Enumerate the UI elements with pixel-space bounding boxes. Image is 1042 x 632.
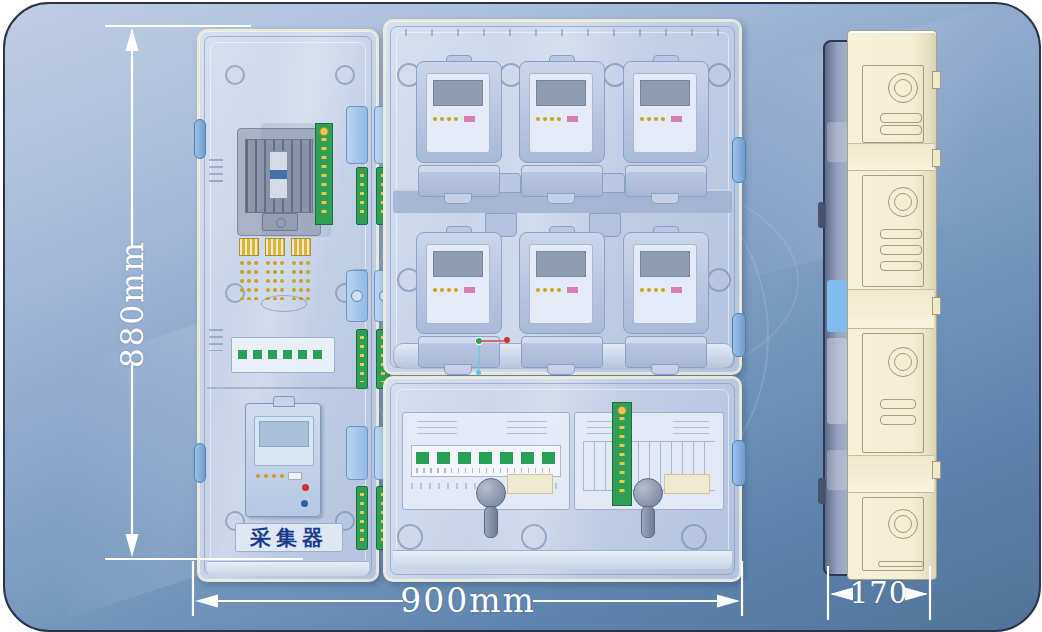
collector-top-tab [273, 396, 295, 407]
axis-marker-cyan [476, 370, 481, 375]
hinge-pcb-strip [356, 486, 368, 550]
side-edge-tab [932, 71, 941, 89]
side-view [821, 30, 937, 582]
vent-lines [417, 421, 457, 435]
meter-cover-tab [444, 364, 472, 375]
label-tag [664, 474, 710, 494]
vent-slot [880, 261, 922, 271]
pcb-mount-dot [619, 407, 626, 414]
led-dot [264, 474, 268, 478]
screw-boss [225, 65, 245, 85]
meter-cover-tab [547, 193, 575, 204]
meter-face [426, 244, 490, 324]
wiring-terminal-strip [231, 337, 335, 373]
knockout-ring-inner [894, 79, 912, 97]
meter-led-row [536, 116, 578, 122]
breaker-switch-row [411, 445, 561, 477]
side-latch-block [827, 122, 847, 162]
door-hinge-left [194, 443, 206, 483]
meter-lcd [640, 251, 690, 277]
meter-label-pink [464, 287, 475, 293]
meter-led-row [640, 116, 682, 122]
pcb-solder-dots [322, 138, 327, 216]
collector-led-row [256, 472, 302, 480]
energy-meter [623, 55, 707, 200]
fuse-terminal-block [239, 238, 259, 300]
side-hinge-highlight [827, 280, 847, 332]
meter-label-pink [671, 287, 682, 293]
meter-lcd [433, 80, 483, 106]
meter-label-pink [464, 116, 475, 122]
energy-meter [416, 226, 500, 371]
meter-face [529, 73, 593, 153]
vertical-terminal-pcb [612, 402, 632, 506]
knockout-ring-inner [894, 193, 912, 211]
meter-cover-tab [651, 193, 679, 204]
pcb-mount-dot [321, 128, 328, 135]
meter-face [633, 244, 697, 324]
energy-meter [519, 55, 603, 200]
meter-led-row [433, 116, 475, 122]
knockout-ring-inner [894, 353, 912, 371]
collector-red-button [302, 484, 309, 491]
pcb-solder-dots [620, 417, 625, 497]
vent-slot [880, 229, 922, 239]
meter-led-row [536, 287, 578, 293]
latch-knob [351, 290, 363, 302]
breaker-switch-toggles [416, 452, 556, 464]
meter-led-row [433, 287, 475, 293]
led-dot [256, 474, 260, 478]
collector-lcd [259, 421, 309, 447]
section-band [848, 143, 934, 171]
breaker-comb [416, 468, 556, 473]
energy-meter [519, 226, 603, 371]
fuse-terminal-pins [239, 260, 259, 300]
depth-dimension-label: 170 [850, 576, 908, 610]
vent-slot [880, 399, 916, 409]
meter-led-row [640, 287, 682, 293]
fuse-terminal-head [291, 238, 311, 256]
meter-face [529, 244, 593, 324]
side-view-body [847, 30, 937, 580]
section-band [848, 455, 934, 493]
top-clip-comb [405, 29, 720, 36]
knockout-ring-inner [894, 515, 912, 533]
meter-face [426, 73, 490, 153]
led-dot [280, 474, 284, 478]
meter-cover-tab [444, 193, 472, 204]
lock-lever [641, 506, 655, 538]
side-edge-tab [932, 461, 941, 479]
screw-boss [521, 524, 547, 550]
collector-blue-button [301, 500, 308, 507]
energy-meter [416, 55, 500, 200]
lock-knob [476, 478, 506, 508]
lock-lever [484, 506, 498, 538]
fuse-terminal-head [239, 238, 259, 256]
vent-slot [880, 125, 922, 135]
vent-slot [880, 415, 916, 425]
side-edge-tab [932, 297, 941, 315]
meter-face [633, 73, 697, 153]
meter-section-panel [383, 19, 742, 375]
lower-breaker-panel [383, 376, 742, 582]
meter-lcd [536, 251, 586, 277]
lock-knob [633, 478, 663, 508]
axis-marker-line [482, 340, 504, 342]
pcb-solder-dots [360, 493, 364, 543]
collector-screen-bezel [254, 416, 314, 466]
side-hinge-nub [818, 478, 826, 504]
meter-box-dimension-diagram: 采集器 [0, 0, 1042, 632]
collector-port [288, 472, 302, 480]
side-hinge-nub [818, 202, 826, 228]
door-latch [346, 270, 368, 322]
pcb-solder-dots [360, 336, 364, 382]
panel-hinge-right [732, 440, 746, 486]
hinge-pcb-strip [356, 167, 368, 225]
screw-boss [707, 268, 731, 292]
collector-plaque: 采集器 [235, 523, 343, 552]
door-seam [207, 387, 369, 389]
side-latch-block [827, 450, 847, 490]
door-bottom-skirt [207, 561, 369, 576]
panel-bottom-skirt [393, 550, 732, 569]
pcb-solder-dots [360, 174, 364, 218]
vent-lines [673, 421, 709, 435]
fuse-terminal-block [291, 238, 311, 300]
screw-boss [335, 65, 355, 85]
side-latch-block [827, 338, 847, 424]
vent-slot [880, 113, 922, 123]
data-collector-unit [245, 403, 321, 517]
hinge-pcb-strip [356, 329, 368, 389]
side-edge-tab [932, 149, 941, 167]
panel-hinge-right [732, 137, 746, 183]
height-dimension-label: 880mm [114, 240, 150, 368]
axis-marker-red [504, 337, 510, 343]
fuse-terminal-pins [265, 260, 285, 300]
label-tag [507, 474, 553, 494]
meter-cover-tab [547, 364, 575, 375]
fuse-terminal-block [265, 238, 285, 300]
meter-lcd [640, 80, 690, 106]
door-terminal-pcb [315, 123, 333, 225]
screw-boss [681, 524, 707, 550]
door-latch [346, 106, 368, 164]
axis-marker-cyan-line [478, 346, 480, 370]
oval-slot [261, 295, 307, 312]
vent-lines [209, 159, 223, 185]
vent-lines [209, 329, 223, 351]
fuse-terminal-pins [291, 260, 311, 300]
fuse-terminal-head [265, 238, 285, 256]
led-dot [272, 474, 276, 478]
collector-plaque-label: 采集器 [250, 525, 328, 550]
meter-label-pink [671, 116, 682, 122]
terminal-strip-contacts [238, 350, 328, 359]
width-dimension-label: 900mm [400, 581, 536, 620]
screw-boss [707, 63, 731, 87]
meter-label-pink [567, 287, 578, 293]
vent-slot [880, 245, 922, 255]
vent-slot [878, 561, 924, 567]
energy-meter [623, 226, 707, 371]
meter-label-pink [567, 116, 578, 122]
door-hinge-left [194, 119, 206, 159]
section-band [848, 289, 934, 329]
door-latch [346, 426, 368, 480]
meter-lcd [433, 251, 483, 277]
vent-lines [507, 421, 547, 435]
panel-hinge-right [732, 313, 746, 357]
meter-lcd [536, 80, 586, 106]
meter-cover-tab [651, 364, 679, 375]
screw-boss [397, 524, 423, 550]
diagram-background: 采集器 [3, 2, 1041, 632]
